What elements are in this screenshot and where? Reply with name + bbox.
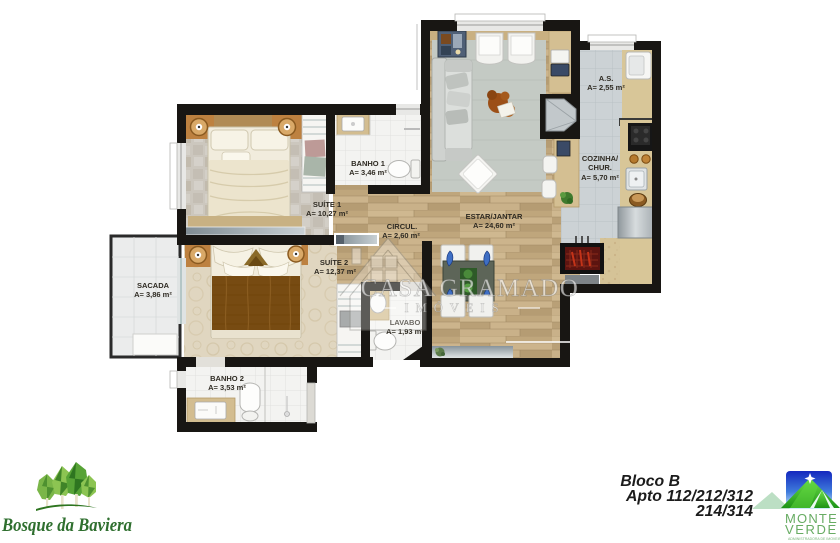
svg-text:A= 5,70 m²: A= 5,70 m² <box>581 173 619 182</box>
svg-text:IMÓVEIS: IMÓVEIS <box>404 301 505 315</box>
svg-text:CIRCUL.: CIRCUL. <box>387 222 417 231</box>
svg-text:ESTAR/JANTAR: ESTAR/JANTAR <box>466 212 523 221</box>
svg-text:VERDE: VERDE <box>785 522 838 537</box>
svg-text:SUÍTE 1: SUÍTE 1 <box>313 200 341 209</box>
svg-text:A= 12,37 m²: A= 12,37 m² <box>314 267 356 276</box>
svg-text:SACADA: SACADA <box>137 281 170 290</box>
svg-text:A= 24,60 m²: A= 24,60 m² <box>473 221 515 230</box>
svg-text:SUÍTE 2: SUÍTE 2 <box>320 258 348 267</box>
svg-text:A= 2,55 m²: A= 2,55 m² <box>587 83 625 92</box>
svg-text:Bosque da Baviera: Bosque da Baviera <box>1 515 132 536</box>
svg-text:CASA GRAMADO: CASA GRAMADO <box>361 275 580 302</box>
svg-text:A= 3,46 m²: A= 3,46 m² <box>349 168 387 177</box>
svg-text:214/314: 214/314 <box>695 503 753 520</box>
svg-text:A= 10,27 m²: A= 10,27 m² <box>306 209 348 218</box>
svg-text:CHUR.: CHUR. <box>588 163 612 172</box>
svg-text:A= 3,53 m²: A= 3,53 m² <box>208 383 246 392</box>
svg-text:A= 3,86 m²: A= 3,86 m² <box>134 290 172 299</box>
svg-text:BANHO 1: BANHO 1 <box>351 159 385 168</box>
svg-text:ADMINISTRADORA DE IMOVEIS: ADMINISTRADORA DE IMOVEIS <box>788 537 840 541</box>
svg-text:A.S.: A.S. <box>599 74 614 83</box>
svg-text:COZINHA/: COZINHA/ <box>582 154 619 163</box>
svg-text:BANHO 2: BANHO 2 <box>210 374 244 383</box>
